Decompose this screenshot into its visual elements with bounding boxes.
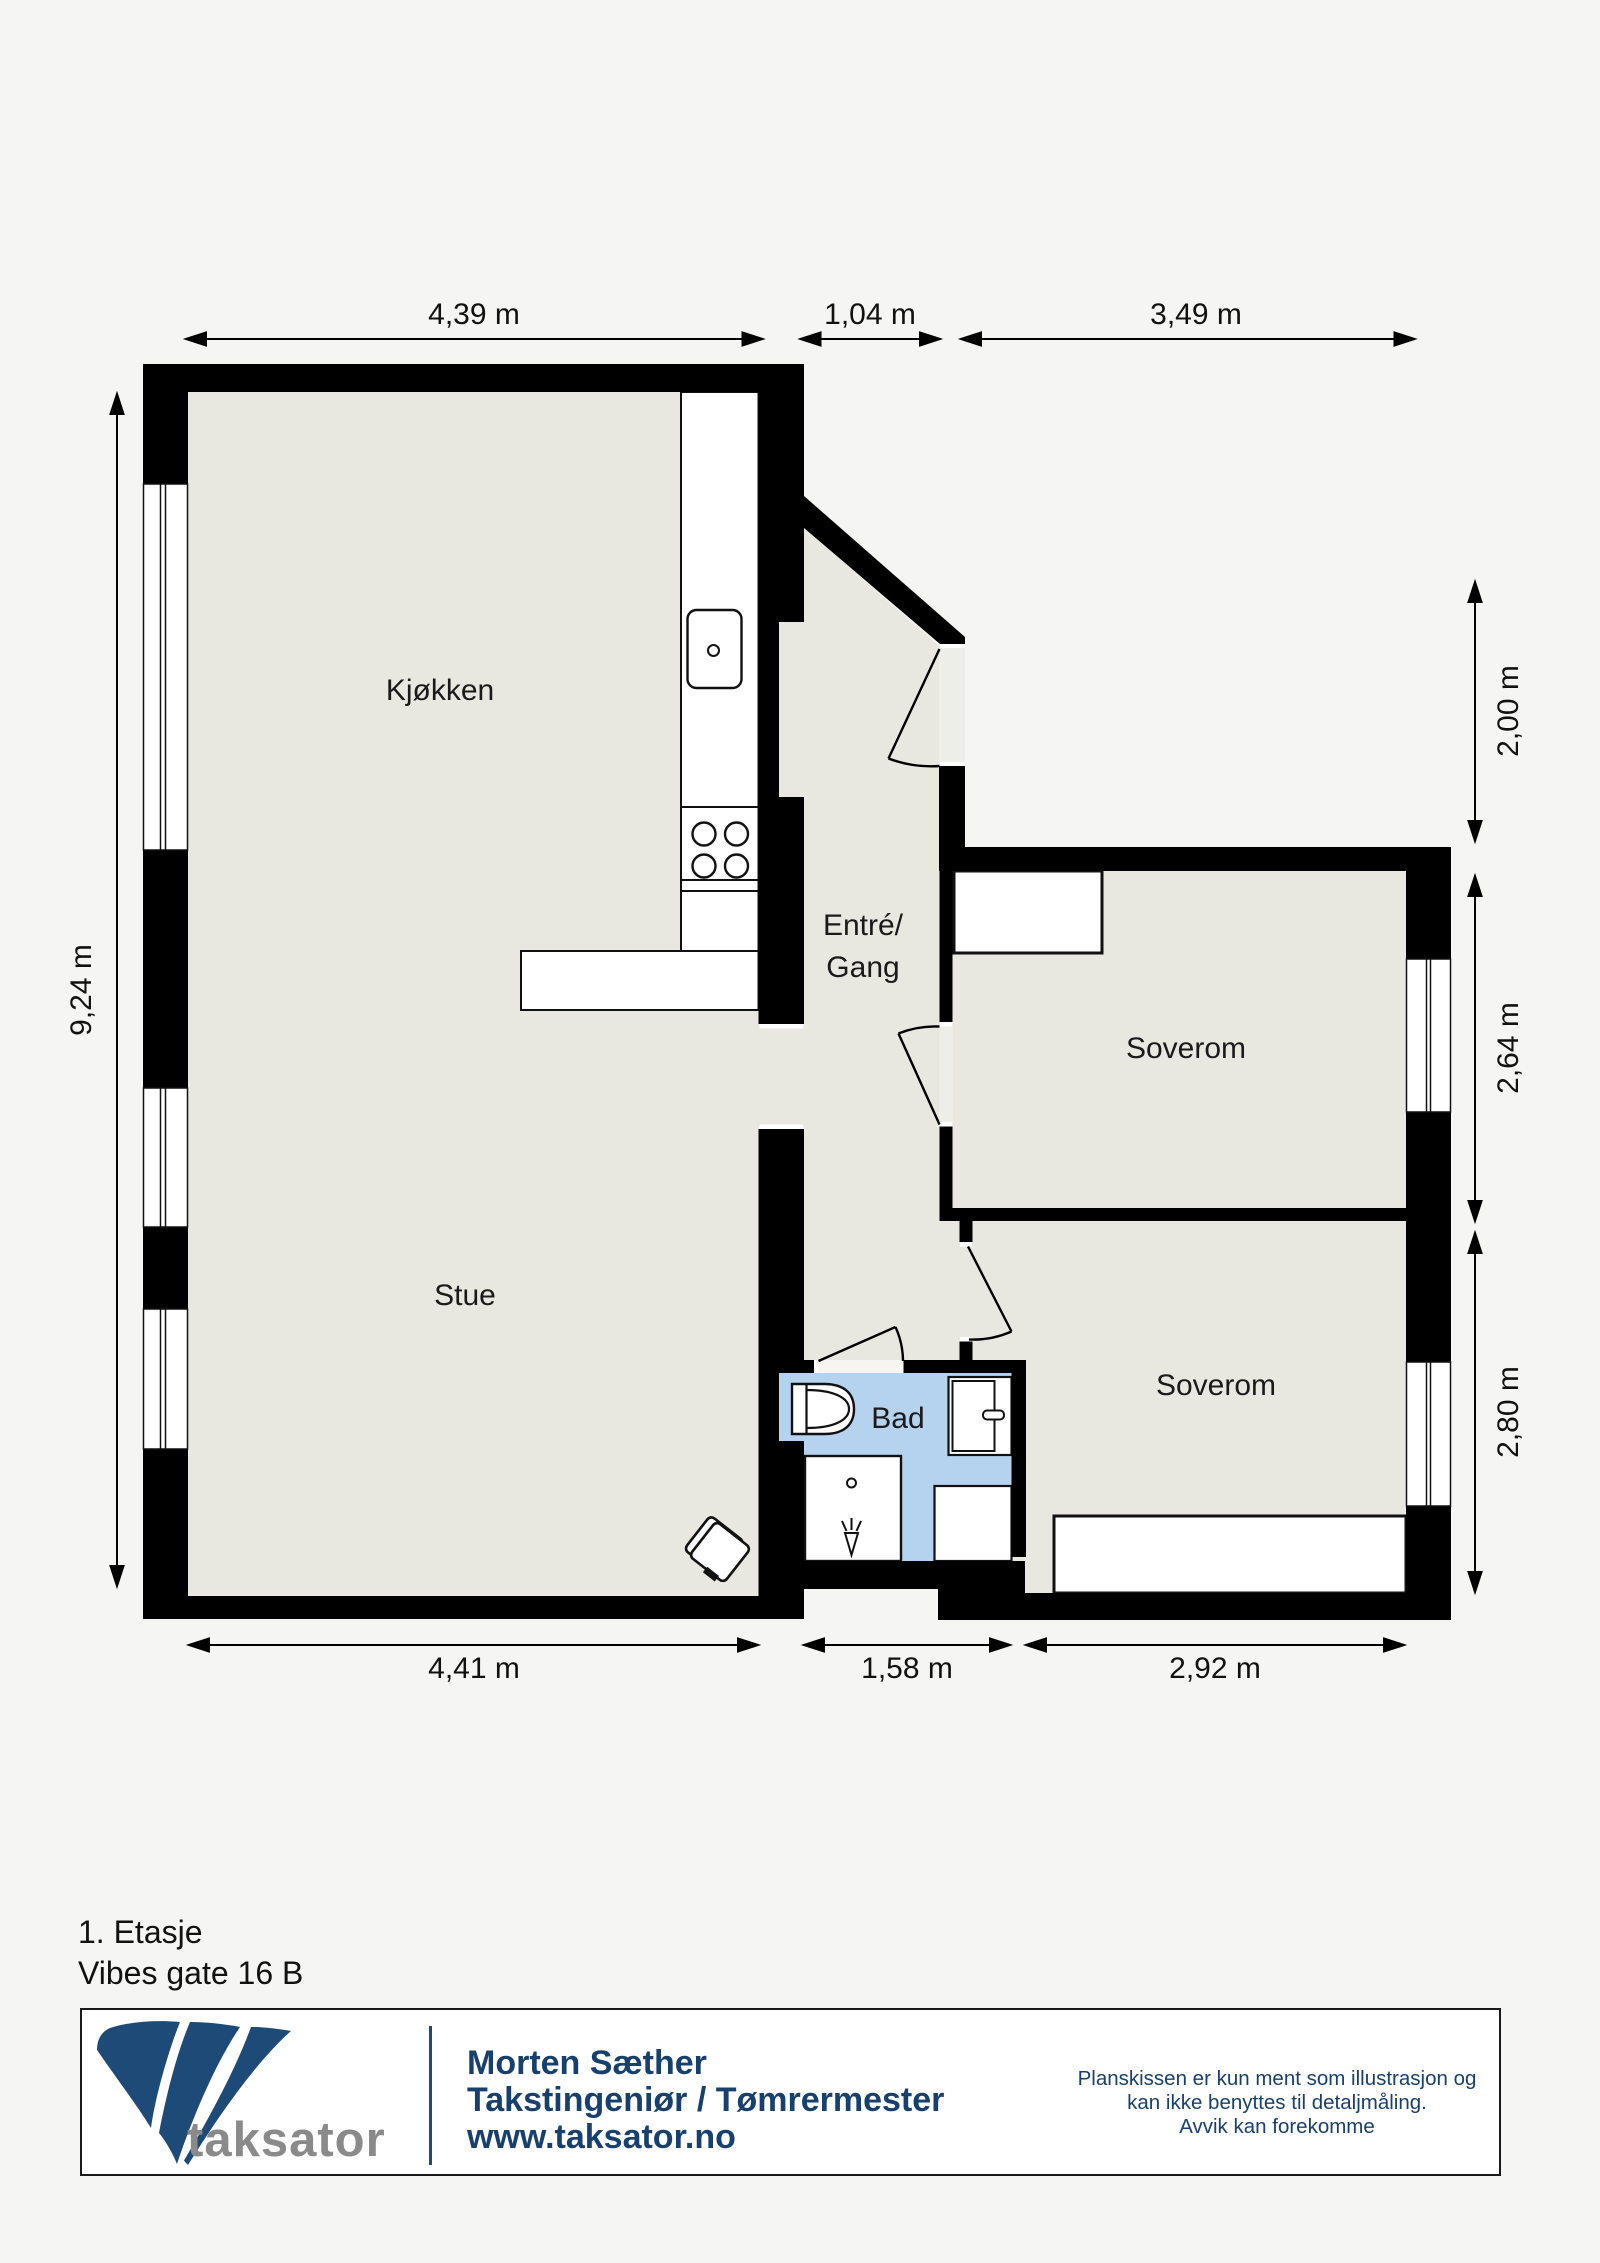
svg-text:Planskissen er kun ment som il: Planskissen er kun ment som illustrasjon… [1078, 2067, 1477, 2090]
svg-text:Gang: Gang [826, 951, 899, 984]
svg-text:Avvik kan forekomme: Avvik kan forekomme [1179, 2115, 1375, 2138]
svg-text:Stue: Stue [434, 1279, 496, 1312]
svg-text:1. Etasje: 1. Etasje [78, 1914, 203, 1950]
svg-text:Kjøkken: Kjøkken [386, 674, 494, 707]
svg-text:2,80 m: 2,80 m [1492, 1366, 1525, 1458]
svg-text:taksator: taksator [187, 2113, 386, 2167]
svg-text:9,24 m: 9,24 m [65, 944, 98, 1036]
svg-text:kan ikke benyttes til detaljmå: kan ikke benyttes til detaljmåling. [1127, 2091, 1427, 2114]
svg-text:4,41 m: 4,41 m [428, 1652, 520, 1685]
svg-text:Bad: Bad [871, 1402, 924, 1435]
svg-text:Morten Sæther: Morten Sæther [467, 2044, 707, 2082]
svg-text:Soverom: Soverom [1156, 1369, 1276, 1402]
svg-text:4,39 m: 4,39 m [428, 298, 520, 331]
svg-text:2,64 m: 2,64 m [1492, 1002, 1525, 1094]
svg-text:1,04 m: 1,04 m [824, 298, 916, 331]
svg-text:Soverom: Soverom [1126, 1032, 1246, 1065]
svg-text:2,92 m: 2,92 m [1169, 1652, 1261, 1685]
svg-text:3,49 m: 3,49 m [1150, 298, 1242, 331]
svg-text:2,00 m: 2,00 m [1492, 665, 1525, 757]
svg-text:www.taksator.no: www.taksator.no [466, 2118, 736, 2156]
svg-text:Vibes gate 16 B: Vibes gate 16 B [78, 1955, 303, 1991]
svg-text:1,58 m: 1,58 m [861, 1652, 953, 1685]
svg-text:Entré/: Entré/ [823, 909, 904, 942]
svg-text:Takstingeniør / Tømrermester: Takstingeniør / Tømrermester [467, 2081, 944, 2119]
